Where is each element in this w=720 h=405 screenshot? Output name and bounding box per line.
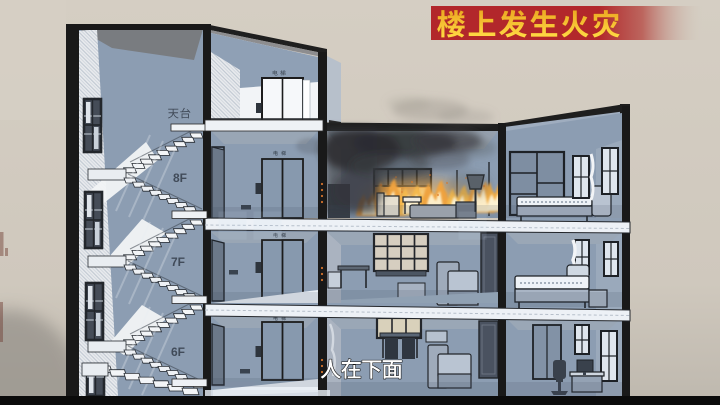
svg-text:6F: 6F [171, 345, 185, 359]
svg-text:■: ■ [455, 191, 490, 256]
svg-text:8F: 8F [173, 171, 187, 185]
svg-text:7F: 7F [171, 255, 185, 269]
svg-text:■■: ■■ [215, 191, 285, 256]
